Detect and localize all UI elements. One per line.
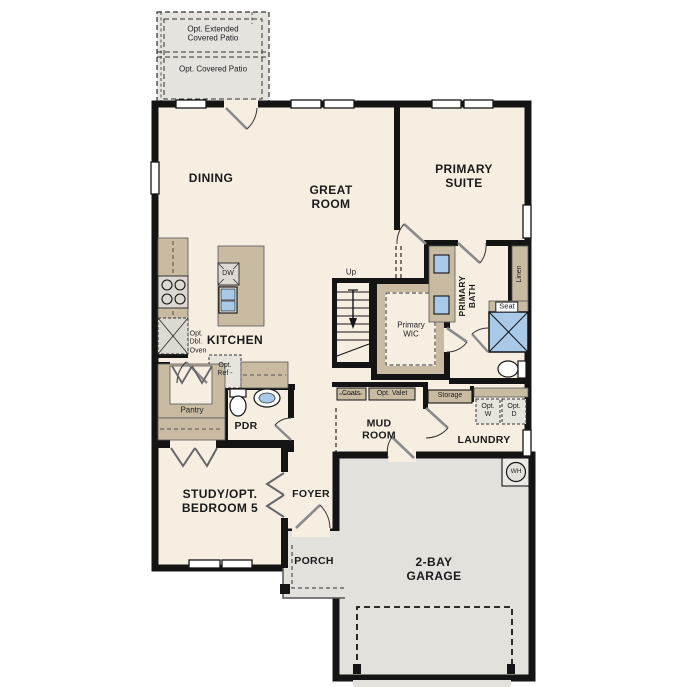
great-room-label: GREATROOM bbox=[309, 183, 352, 211]
patio-extended-label: Opt. ExtendedCovered Patio bbox=[187, 25, 238, 44]
floor-plan: Opt. ExtendedCovered Patio Opt. Covered … bbox=[0, 0, 687, 687]
study-label: STUDY/OPT.BEDROOM 5 bbox=[182, 487, 258, 515]
dishwasher-label: DW bbox=[222, 270, 234, 278]
opt-valet-label: Opt. Valet bbox=[377, 390, 408, 398]
pantry-cabinets bbox=[158, 364, 225, 440]
seat-label: Seat bbox=[495, 302, 518, 313]
foyer-label: FOYER bbox=[292, 488, 330, 500]
opt-dryer-label: Opt.D bbox=[507, 403, 520, 420]
primary-wic-label: PrimaryWIC bbox=[397, 321, 425, 340]
storage-label: Storage bbox=[438, 392, 463, 400]
stairs-up-label: Up bbox=[346, 267, 356, 276]
opt-ref-label: Opt.Ref - bbox=[217, 362, 232, 379]
island-sink-icon bbox=[219, 287, 237, 313]
coats-label: Coats bbox=[342, 390, 360, 398]
floor-plan-drawing bbox=[0, 0, 687, 687]
pdr-label: PDR bbox=[234, 420, 257, 432]
porch-label: PORCH bbox=[294, 555, 333, 567]
opt-dbl-oven-label: Opt.Dbl.Oven bbox=[190, 331, 207, 356]
bath-toilet-icon bbox=[498, 361, 526, 378]
shower-icon bbox=[489, 312, 528, 352]
ref-counter bbox=[241, 362, 288, 388]
primary-suite-label: PRIMARYSUITE bbox=[435, 162, 493, 190]
wd-counter bbox=[474, 388, 528, 397]
primary-bath-label: PRIMARYBATH bbox=[457, 276, 477, 317]
toilet-icon bbox=[230, 389, 246, 416]
pantry-label: Pantry bbox=[180, 405, 203, 414]
opt-double-oven-icon bbox=[158, 318, 188, 354]
linen-label: Linen bbox=[516, 265, 524, 282]
cooktop-icon bbox=[158, 276, 188, 308]
kitchen-label: KITCHEN bbox=[207, 333, 263, 347]
water-heater-label: WH bbox=[511, 468, 522, 476]
double-vanity bbox=[429, 246, 455, 322]
opt-washer-label: Opt.W bbox=[481, 403, 494, 420]
dining-label: DINING bbox=[189, 171, 233, 185]
garage-label: 2-BAYGARAGE bbox=[406, 555, 461, 583]
mud-room-label: MUDROOM bbox=[362, 418, 396, 443]
sink-icon bbox=[254, 389, 280, 407]
laundry-label: LAUNDRY bbox=[457, 434, 510, 446]
patio-covered-label: Opt. Covered Patio bbox=[179, 64, 247, 73]
driveway-strip bbox=[353, 680, 511, 687]
kitchen-island bbox=[218, 246, 264, 326]
